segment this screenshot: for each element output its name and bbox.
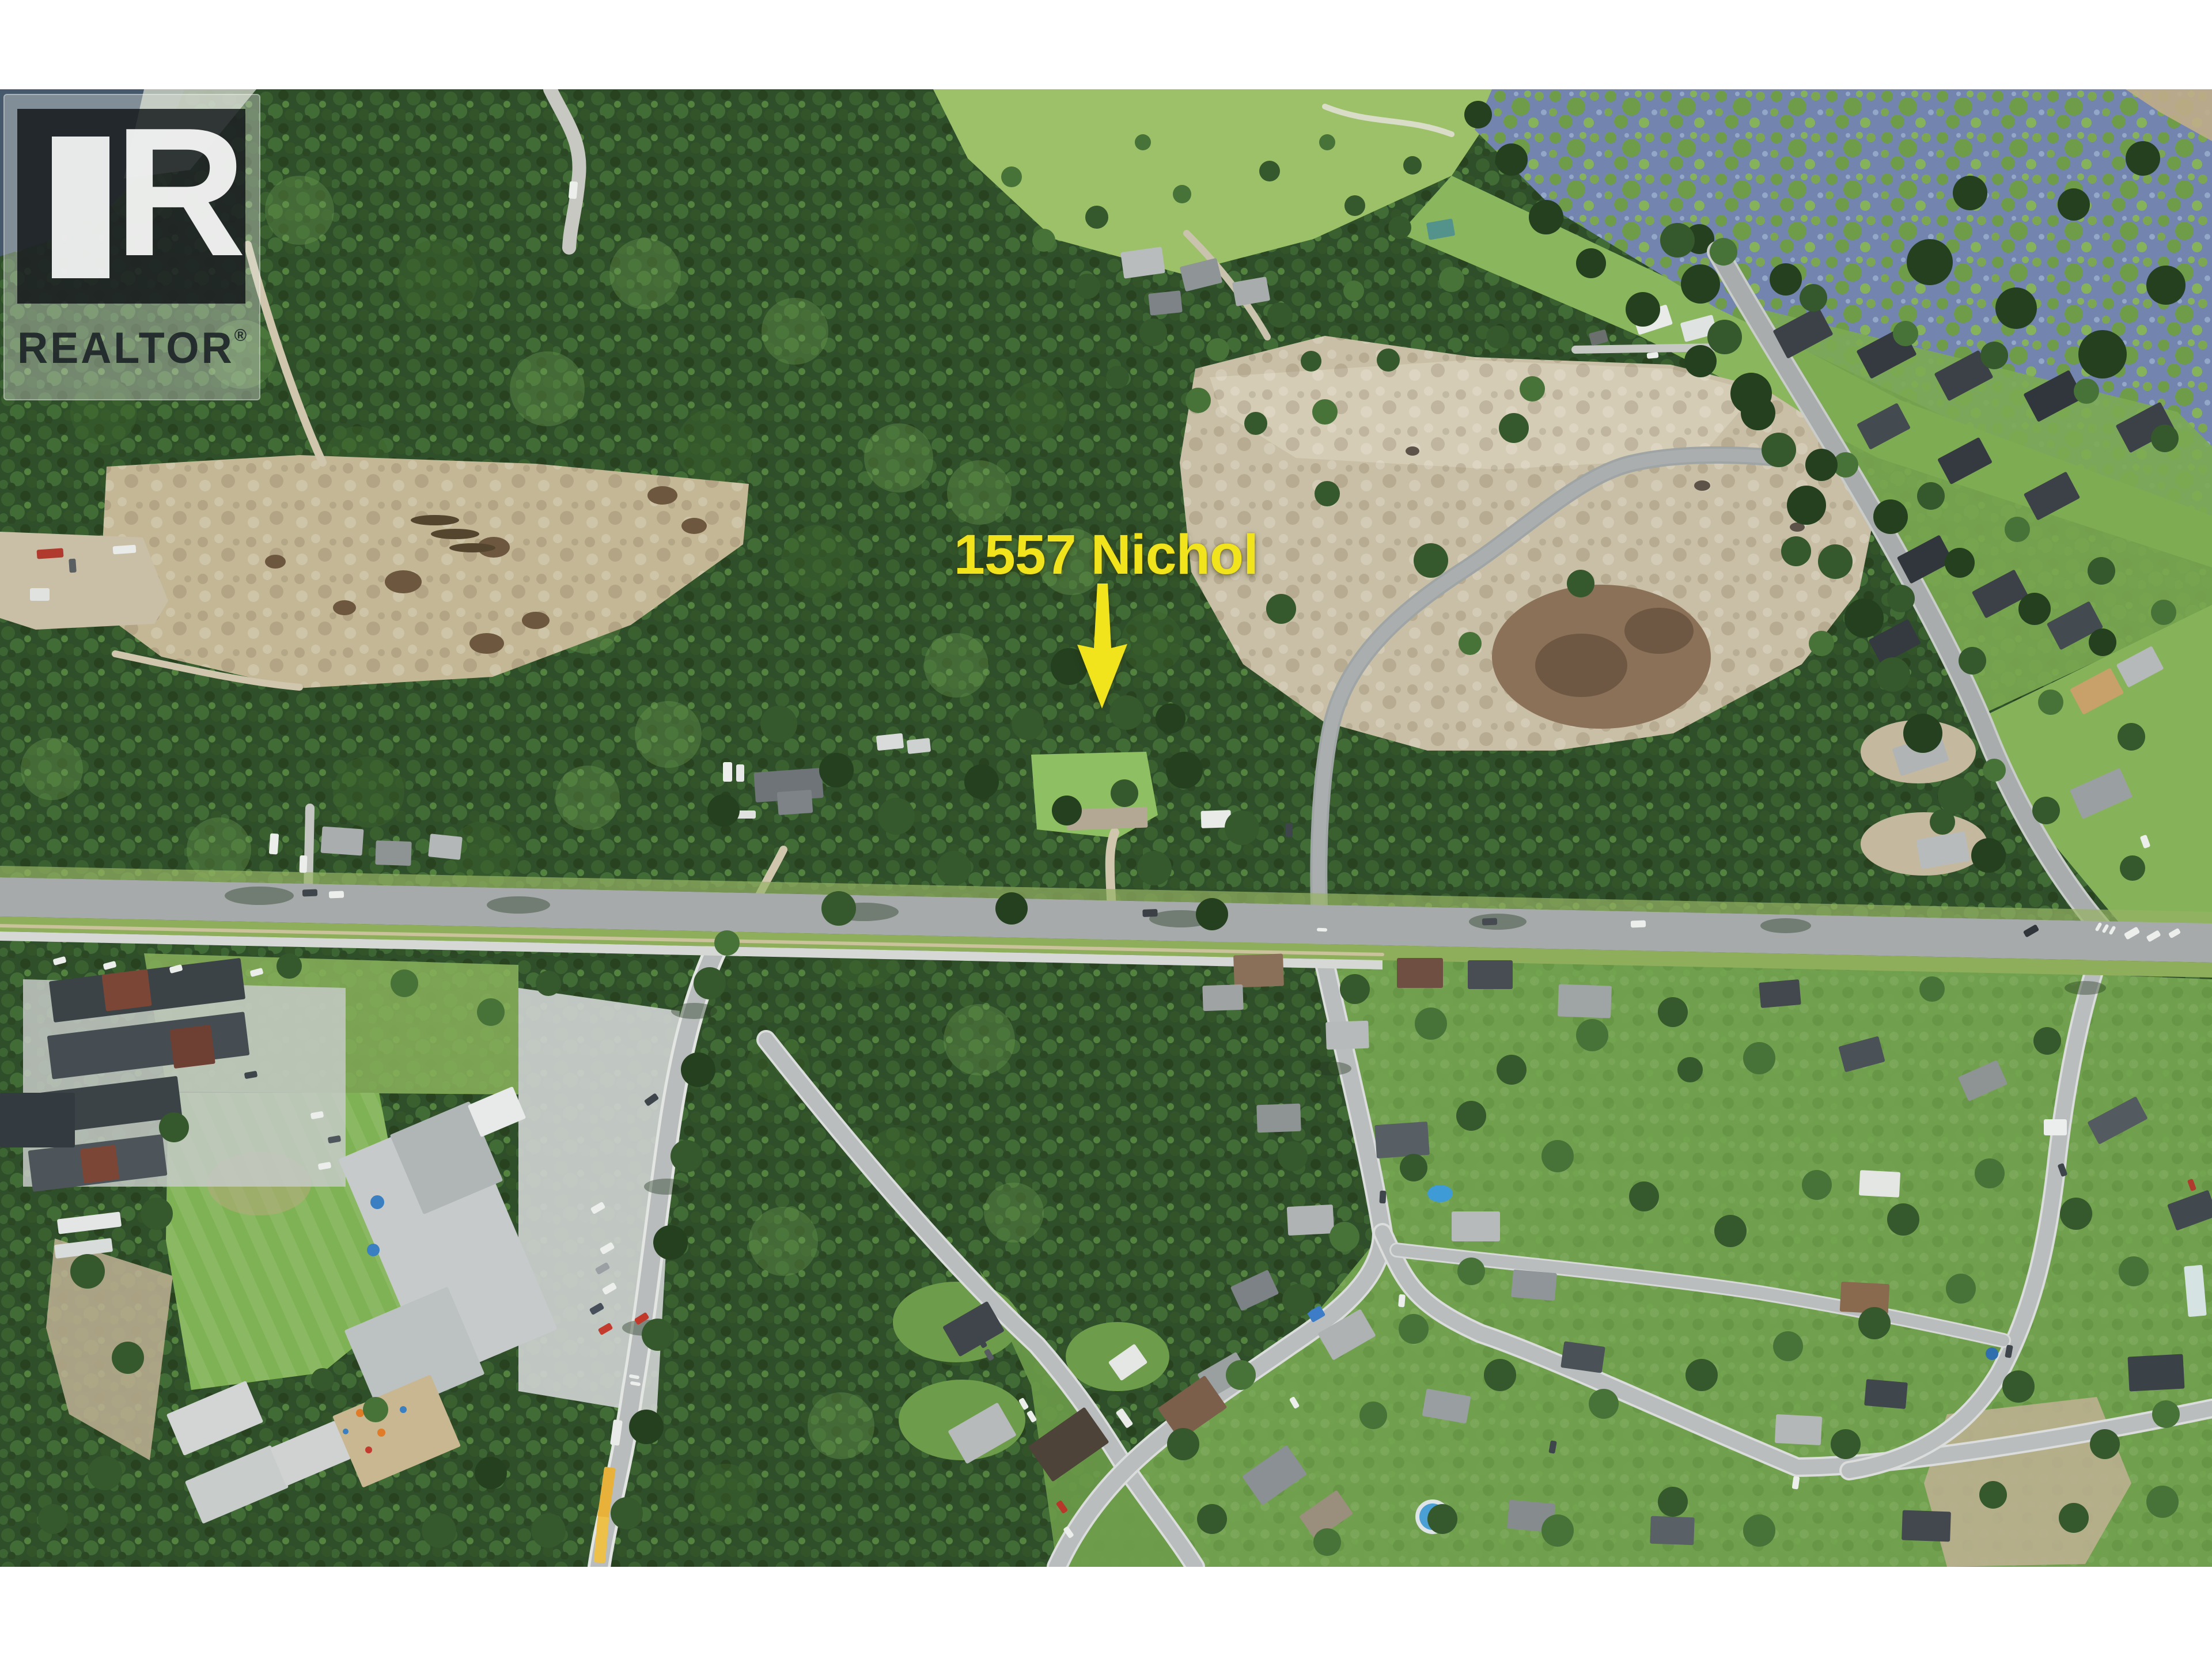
works-yard — [0, 532, 168, 630]
letterbox-top — [0, 0, 2212, 89]
realtor-logo-bar-icon — [52, 137, 109, 278]
realtor-logo: R — [17, 109, 245, 304]
playground-extra — [365, 1446, 372, 1453]
realtor-wordmark: REALTOR® — [9, 323, 256, 373]
realtor-logo-r-icon: R — [114, 95, 241, 290]
aerial-scene — [0, 89, 2212, 1567]
registered-mark: ® — [234, 326, 247, 345]
realtor-brand-text: REALTOR — [17, 324, 234, 373]
realtor-watermark: R REALTOR® — [3, 94, 260, 400]
aerial-photo: 1557 Nichol R REALTOR® — [0, 89, 2212, 1567]
pool-oval — [1427, 1185, 1453, 1202]
letterbox-bottom — [0, 1567, 2212, 1659]
trampoline — [1986, 1347, 1998, 1360]
